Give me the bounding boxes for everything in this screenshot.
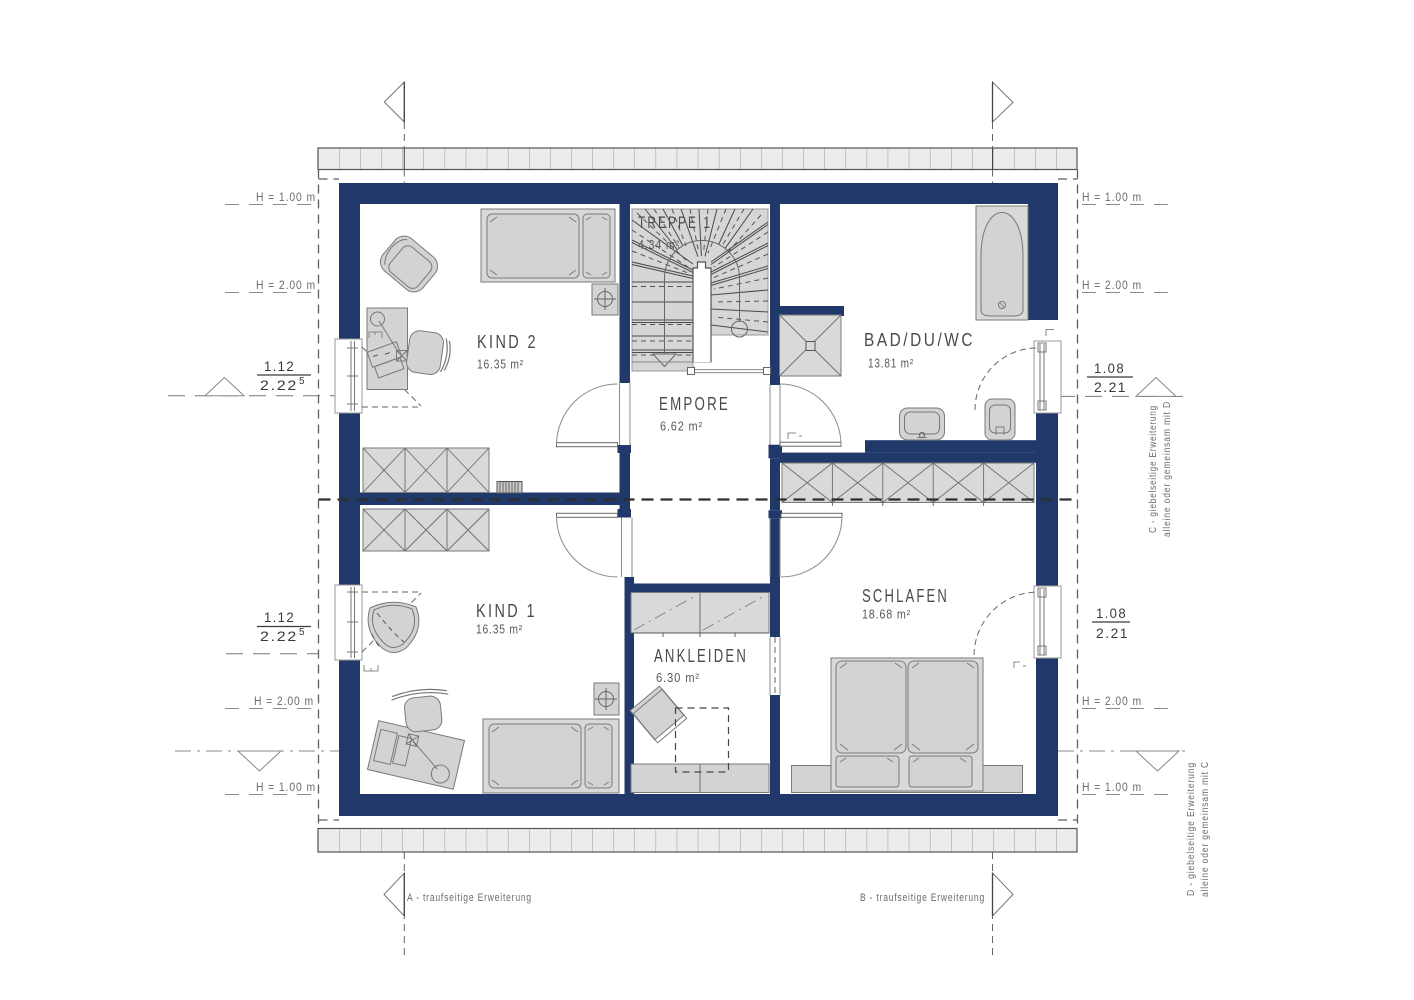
svg-text:KIND 1: KIND 1 <box>476 601 537 621</box>
svg-text:H = 2.00 m: H = 2.00 m <box>254 696 314 708</box>
svg-text:18.68 m²: 18.68 m² <box>862 607 911 622</box>
svg-text:1.08: 1.08 <box>1096 605 1127 621</box>
svg-text:13.81 m²: 13.81 m² <box>868 356 914 371</box>
svg-text:H = 2.00 m: H = 2.00 m <box>1082 696 1142 708</box>
svg-text:BAD/DU/WC: BAD/DU/WC <box>864 330 975 350</box>
svg-text:5: 5 <box>299 376 306 387</box>
svg-text:KIND 2: KIND 2 <box>477 332 538 352</box>
svg-text:1.08: 1.08 <box>1094 360 1125 376</box>
svg-text:H = 1.00 m: H = 1.00 m <box>256 192 316 204</box>
svg-text:SCHLAFEN: SCHLAFEN <box>862 586 949 606</box>
svg-text:H = 2.00 m: H = 2.00 m <box>1082 280 1142 292</box>
svg-text:2.22: 2.22 <box>260 628 298 644</box>
svg-text:alleine oder gemeinsam mit C: alleine oder gemeinsam mit C <box>1199 761 1211 897</box>
svg-text:EMPORE: EMPORE <box>659 394 730 414</box>
svg-text:H = 1.00 m: H = 1.00 m <box>1082 192 1142 204</box>
svg-text:5: 5 <box>299 627 306 638</box>
svg-text:1.12: 1.12 <box>264 358 295 374</box>
svg-text:2.21: 2.21 <box>1096 625 1129 641</box>
svg-text:16.35 m²: 16.35 m² <box>477 357 524 372</box>
svg-text:ANKLEIDEN: ANKLEIDEN <box>654 646 748 666</box>
svg-text:1.12: 1.12 <box>264 609 295 625</box>
svg-text:A - traufseitige Erweiterung: A - traufseitige Erweiterung <box>407 892 532 904</box>
svg-text:16.35 m²: 16.35 m² <box>476 622 523 637</box>
svg-text:2.21: 2.21 <box>1094 379 1127 395</box>
svg-text:2.22: 2.22 <box>260 377 298 393</box>
svg-text:alleine oder gemeinsam mit D: alleine oder gemeinsam mit D <box>1161 401 1173 537</box>
svg-text:6.62 m²: 6.62 m² <box>660 419 703 434</box>
svg-text:6.30 m²: 6.30 m² <box>656 670 700 685</box>
svg-text:H = 2.00 m: H = 2.00 m <box>256 280 316 292</box>
svg-text:H = 1.00 m: H = 1.00 m <box>1082 782 1142 794</box>
svg-text:H = 1.00 m: H = 1.00 m <box>256 782 316 794</box>
svg-text:C - giebelseitige Erweiterung: C - giebelseitige Erweiterung <box>1147 405 1159 533</box>
svg-text:TREPPE 1: TREPPE 1 <box>638 213 712 232</box>
svg-text:B - traufseitige Erweiterung: B - traufseitige Erweiterung <box>860 892 985 904</box>
svg-text:4.34 m²: 4.34 m² <box>638 237 680 252</box>
svg-text:D - giebelseitige Erweiterung: D - giebelseitige Erweiterung <box>1185 762 1197 896</box>
